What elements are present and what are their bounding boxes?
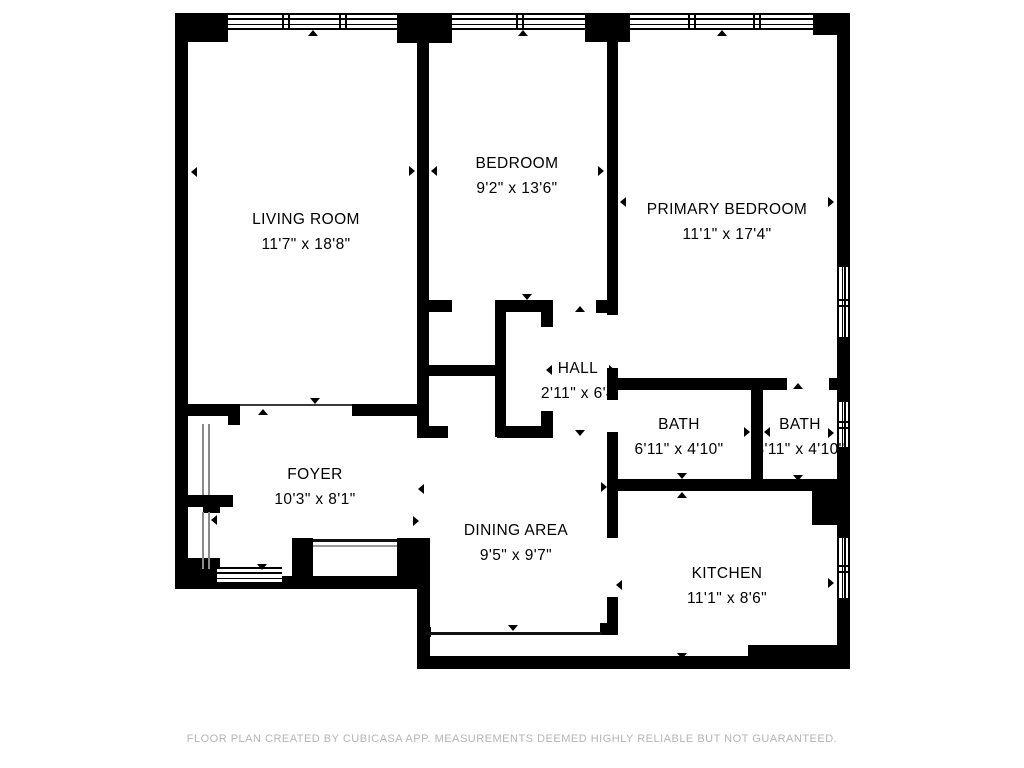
room-label: PRIMARY BEDROOM11'1" x 17'4" <box>647 197 807 247</box>
window-glass-line <box>452 24 585 26</box>
door-opening-line <box>313 545 397 547</box>
wall-arrow-marker-icon <box>828 578 834 588</box>
wall-segment <box>607 597 618 635</box>
room-name: BATH <box>634 412 723 437</box>
window-mullion-tick <box>282 15 284 28</box>
window-glass-line <box>842 267 844 337</box>
wall-segment <box>607 479 812 491</box>
window-mullion-tick <box>839 305 848 307</box>
door-opening-line <box>240 404 352 406</box>
room-name: FOYER <box>274 462 355 487</box>
room-dimensions: 9'5" x 9'7" <box>464 543 568 568</box>
wall-segment <box>613 378 787 390</box>
wall-segment <box>837 13 850 267</box>
wall-arrow-marker-icon <box>793 475 803 481</box>
wall-segment <box>292 538 313 576</box>
window-glass-line <box>217 578 282 580</box>
window-glass-line <box>842 538 844 598</box>
window-mullion-tick <box>522 15 524 28</box>
window-glass-line <box>630 24 813 26</box>
wall-arrow-marker-icon <box>575 306 585 312</box>
window-glass-line <box>228 18 397 20</box>
wall-arrow-marker-icon <box>431 166 437 176</box>
room-label: BATH6'11" x 4'10" <box>634 412 723 462</box>
wall-arrow-marker-icon <box>677 382 687 388</box>
window-glass-line <box>844 538 846 598</box>
room-name: KITCHEN <box>687 561 767 586</box>
wall-segment <box>541 411 553 426</box>
wall-arrow-marker-icon <box>310 398 320 404</box>
room-name: PRIMARY BEDROOM <box>647 197 807 222</box>
floor-plan-canvas: LIVING ROOM11'7" x 18'8"BEDROOM9'2" x 13… <box>0 0 1024 768</box>
wall-segment <box>497 426 553 438</box>
wall-arrow-marker-icon <box>512 432 522 438</box>
door-opening-line <box>313 539 397 542</box>
wall-segment <box>829 378 850 390</box>
wall-segment <box>607 30 618 315</box>
wall-arrow-marker-icon <box>308 30 318 36</box>
window-mullion-tick <box>694 15 696 28</box>
room-name: DINING AREA <box>464 518 568 543</box>
window-mullion-tick <box>839 571 848 573</box>
room-label: KITCHEN11'1" x 8'6" <box>687 561 767 611</box>
room-dimensions: 6'11" x 4'10" <box>634 437 723 462</box>
room-label: LIVING ROOM11'7" x 18'8" <box>252 207 360 257</box>
wall-arrow-marker-icon <box>508 625 518 631</box>
wall-arrow-marker-icon <box>257 564 267 570</box>
window-glass-line <box>228 24 397 26</box>
room-label: BEDROOM9'2" x 13'6" <box>476 151 559 201</box>
wall-arrow-marker-icon <box>620 197 626 207</box>
room-label: HALL2'11" x 6'4 <box>541 356 615 406</box>
wall-arrow-marker-icon <box>258 409 268 415</box>
wall-arrow-marker-icon <box>409 166 415 176</box>
room-label: BATH3'11" x 4'10" <box>755 412 844 462</box>
door-opening-line <box>202 512 204 569</box>
room-dimensions: 11'1" x 17'4" <box>647 222 807 247</box>
wall-segment <box>748 645 850 669</box>
wall-arrow-marker-icon <box>601 482 607 492</box>
wall-arrow-marker-icon <box>828 197 834 207</box>
room-name: HALL <box>541 356 615 381</box>
room-label: FOYER10'3" x 8'1" <box>274 462 355 512</box>
window <box>217 567 282 584</box>
wall-segment <box>837 337 850 402</box>
window-glass-line <box>452 18 585 20</box>
wall-arrow-marker-icon <box>418 484 424 494</box>
wall-arrow-marker-icon <box>793 383 803 389</box>
wall-arrow-marker-icon <box>677 473 687 479</box>
room-dimensions: 3'11" x 4'10" <box>755 437 844 462</box>
wall-arrow-marker-icon <box>717 30 727 36</box>
window <box>837 538 850 598</box>
window <box>228 13 397 30</box>
wall-segment <box>228 404 240 425</box>
window-mullion-tick <box>688 15 690 28</box>
window-mullion-tick <box>839 299 848 301</box>
window-mullion-tick <box>288 15 290 28</box>
window-mullion-tick <box>839 565 848 567</box>
wall-arrow-marker-icon <box>598 166 604 176</box>
door-opening-line <box>208 512 210 569</box>
wall-segment <box>175 576 430 589</box>
door-opening-line <box>202 424 204 495</box>
window-glass-line <box>844 267 846 337</box>
wall-segment <box>541 312 553 327</box>
window <box>837 267 850 337</box>
door-opening-line <box>208 424 210 495</box>
footer-disclaimer: FLOOR PLAN CREATED BY CUBICASA APP. MEAS… <box>0 733 1024 745</box>
window-mullion-tick <box>339 15 341 28</box>
room-name: LIVING ROOM <box>252 207 360 232</box>
wall-segment <box>596 300 618 313</box>
wall-arrow-marker-icon <box>677 653 687 659</box>
wall-segment <box>417 300 452 312</box>
window-glass-line <box>217 572 282 574</box>
room-dimensions: 11'7" x 18'8" <box>252 232 360 257</box>
wall-segment <box>417 426 448 438</box>
window <box>452 13 585 30</box>
floor-plan-page: LIVING ROOM11'7" x 18'8"BEDROOM9'2" x 13… <box>0 0 1024 768</box>
wall-segment <box>417 365 506 376</box>
window-mullion-tick <box>753 15 755 28</box>
wall-segment <box>417 538 430 669</box>
wall-segment <box>812 479 838 525</box>
wall-arrow-marker-icon <box>211 515 217 525</box>
wall-arrow-marker-icon <box>575 430 585 436</box>
room-label: DINING AREA9'5" x 9'7" <box>464 518 568 568</box>
room-name: BEDROOM <box>476 151 559 176</box>
room-dimensions: 11'1" x 8'6" <box>687 586 767 611</box>
room-dimensions: 10'3" x 8'1" <box>274 487 355 512</box>
window-mullion-tick <box>759 15 761 28</box>
room-name: BATH <box>755 412 844 437</box>
wall-arrow-marker-icon <box>518 30 528 36</box>
window <box>630 13 813 30</box>
wall-arrow-marker-icon <box>413 516 419 526</box>
wall-arrow-marker-icon <box>616 580 622 590</box>
wall-arrow-marker-icon <box>522 294 532 300</box>
wall-arrow-marker-icon <box>191 167 197 177</box>
wall-segment <box>352 404 418 416</box>
wall-segment <box>175 13 188 589</box>
wall-segment <box>203 495 220 513</box>
wall-arrow-marker-icon <box>744 427 750 437</box>
window-glass-line <box>630 18 813 20</box>
window-mullion-tick <box>516 15 518 28</box>
room-dimensions: 2'11" x 6'4 <box>541 381 615 406</box>
door-opening-line <box>425 632 602 635</box>
window-mullion-tick <box>345 15 347 28</box>
wall-arrow-marker-icon <box>677 492 687 498</box>
room-dimensions: 9'2" x 13'6" <box>476 176 559 201</box>
